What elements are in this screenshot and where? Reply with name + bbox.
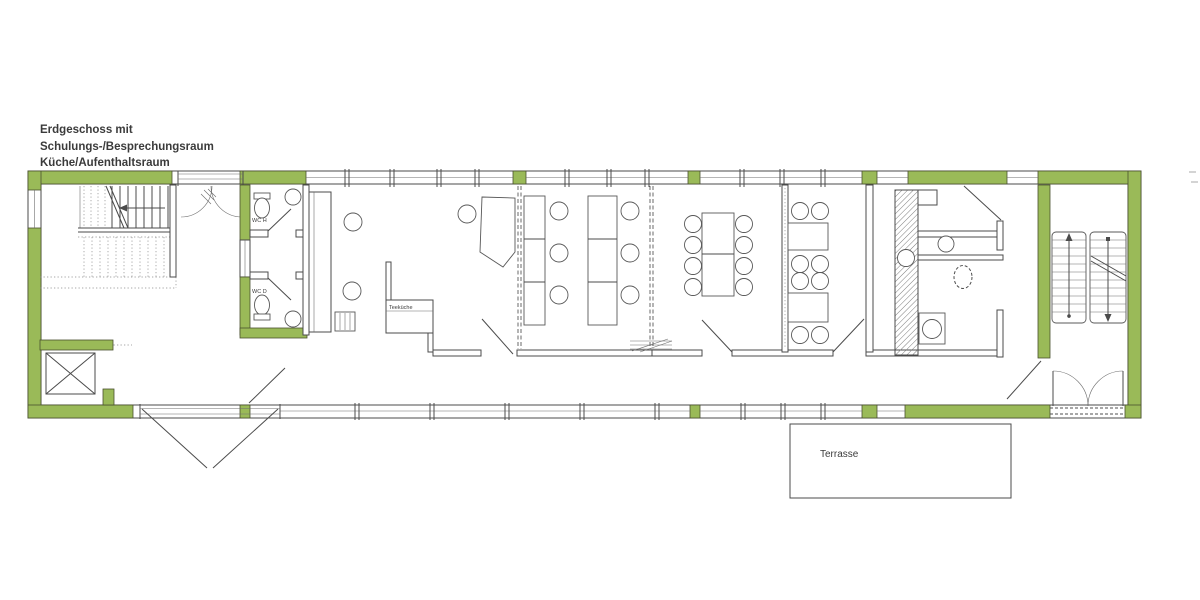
door-swing-arc: [181, 186, 212, 217]
closet: [918, 190, 937, 205]
kitchen-counter: [309, 192, 331, 332]
title-line-3: Küche/Aufenthaltsraum: [40, 157, 170, 169]
wall-green-bottom-6: [1125, 405, 1141, 418]
vestibule-door-leaf: [1007, 361, 1041, 399]
tea-kitchen-label: Teeküche: [389, 305, 413, 311]
door-swing-arc: [1088, 371, 1123, 406]
angled-wall: [964, 186, 1001, 220]
wall-green-top-3: [513, 171, 526, 184]
wc-women-door-leaf: [268, 278, 291, 300]
plan-title: Erdgeschoss mit Schulungs-/Besprechungsr…: [40, 124, 214, 169]
wall-green-left-1: [28, 171, 41, 190]
chairs-row-2: [621, 202, 639, 304]
wc-block: WC H WC D: [240, 185, 309, 338]
table-row-2: [588, 196, 617, 325]
sink-men: [285, 189, 301, 205]
kitchen-sink: [898, 250, 915, 267]
wall-green-bottom-2: [240, 405, 250, 418]
chairs-row-1: [550, 202, 568, 304]
wc-women-label: WC D: [252, 289, 267, 295]
wall-green-top-4: [688, 171, 700, 184]
outer-walls: [28, 171, 1141, 418]
square-table-1: [788, 223, 828, 250]
door-swing-arc: [211, 186, 242, 217]
tall-cabinet-run: [895, 190, 918, 355]
door-swing-arc: [1053, 371, 1088, 406]
presenter-desk: [480, 197, 515, 267]
wc-men-door-leaf: [268, 209, 291, 231]
training-room-door-leaf: [482, 319, 513, 354]
wall-green-bottom-3: [690, 405, 700, 418]
sink-women: [285, 311, 301, 327]
terrace: Terrasse: [790, 424, 1011, 498]
corridor-door-leaf: [249, 368, 285, 403]
kitchen-lounge: Teeküche: [309, 192, 433, 352]
wall-green-bottom-5: [905, 405, 1050, 418]
wash-basin: [938, 236, 954, 252]
wall-green-bottom-1: [28, 405, 133, 418]
terrace-outline: [790, 424, 1011, 498]
round-stool: [343, 282, 361, 300]
round-stool: [344, 213, 362, 231]
wall-green-top-6: [908, 171, 1007, 184]
wall-green-bottom-4: [862, 405, 877, 418]
wall-green-top-2: [240, 171, 306, 184]
floor-plan-drawing: Erdgeschoss mit Schulungs-/Besprechungsr…: [0, 0, 1200, 600]
room-divider-wall: [866, 185, 873, 352]
wall-green-top-7: [1038, 171, 1133, 184]
kitchen-wc-right: [895, 186, 1041, 399]
wall-green-top-5: [862, 171, 877, 184]
title-line-1: Erdgeschoss mit: [40, 124, 133, 136]
stair-hall-west-wall: [1038, 185, 1050, 358]
toilet-cistern: [254, 314, 270, 320]
accessible-toilet: [954, 266, 972, 289]
square-table-2: [788, 293, 828, 322]
toilet-men: [255, 198, 270, 218]
left-staircase: [40, 185, 176, 345]
table-row-1: [524, 196, 545, 325]
right-staircase: [1038, 185, 1126, 414]
wall-green-right: [1128, 171, 1141, 418]
wc-men-label: WC H: [252, 218, 267, 224]
terrace-label: Terrasse: [820, 449, 859, 460]
wall-green-top-1: [28, 171, 172, 184]
wall-green-left-2: [28, 228, 41, 418]
stair-side-wall: [170, 185, 176, 277]
break-room: [788, 185, 873, 352]
title-line-2: Schulungs-/Besprechungsraum: [40, 141, 214, 153]
meeting-room-door-leaf: [702, 320, 732, 352]
meeting-room: [685, 185, 789, 352]
floor-plan-page: Erdgeschoss mit Schulungs-/Besprechungsr…: [0, 0, 1200, 600]
presenter-chair: [458, 205, 476, 223]
break-room-door-leaf: [833, 319, 864, 352]
toilet-women: [255, 295, 270, 315]
elevator: [40, 340, 114, 405]
